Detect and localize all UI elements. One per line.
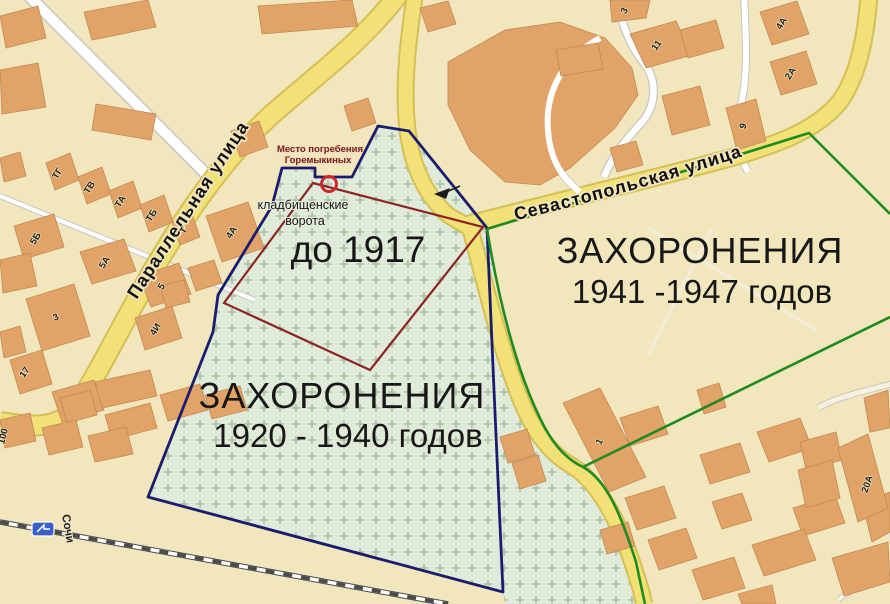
annotation-gates-line2: ворота xyxy=(285,214,325,228)
building xyxy=(0,63,46,114)
zone-label-1941-title: ЗАХОРОНЕНИЯ xyxy=(557,230,844,271)
zone-label-1920-title: ЗАХОРОНЕНИЯ xyxy=(199,375,486,416)
annotation-goremykin-line2: Горемыкиных xyxy=(285,155,352,166)
zone-label-1920-subtitle: 1920 - 1940 годов xyxy=(213,417,482,454)
annotation-goremykin-line1: Место погребения xyxy=(277,144,363,155)
annotation-gates-line1: кладбищенские xyxy=(258,198,349,212)
building xyxy=(0,253,37,293)
cemetery-map: Сочи Параллельная улица Севастопольская … xyxy=(0,0,890,604)
railway-station-icon xyxy=(32,522,54,536)
zone-label-1941-subtitle: 1941 -1947 годов xyxy=(572,273,832,310)
zone-label-pre-1917: до 1917 xyxy=(291,229,426,270)
map-canvas: Сочи Параллельная улица Севастопольская … xyxy=(0,0,890,604)
